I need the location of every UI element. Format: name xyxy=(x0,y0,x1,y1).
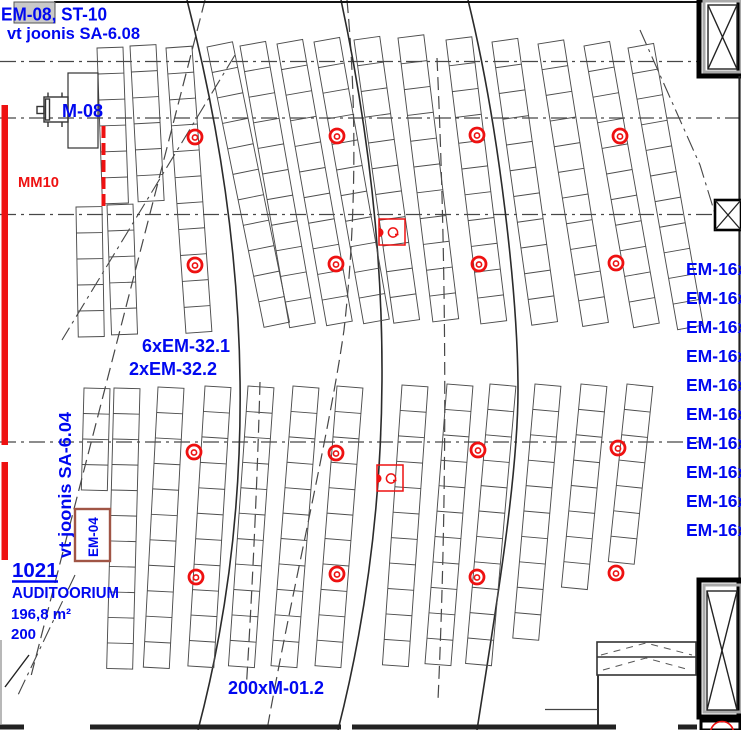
svg-text:196,8 m²: 196,8 m² xyxy=(11,606,71,623)
svg-text:EM-16x: EM-16x xyxy=(686,346,741,366)
svg-text:AUDITOORIUM: AUDITOORIUM xyxy=(12,585,119,602)
svg-text:1021: 1021 xyxy=(12,559,58,582)
svg-text:EM-16x: EM-16x xyxy=(686,404,741,424)
svg-text:EM-16x: EM-16x xyxy=(686,433,741,453)
svg-text:200: 200 xyxy=(11,626,36,643)
svg-text:6xEM-32.1: 6xEM-32.1 xyxy=(142,336,230,356)
svg-text:EM-16x: EM-16x xyxy=(686,288,741,308)
svg-text:vt joonis SA-6.08: vt joonis SA-6.08 xyxy=(7,24,140,43)
svg-text:EM-04: EM-04 xyxy=(86,517,101,557)
svg-text:2xEM-32.2: 2xEM-32.2 xyxy=(129,359,217,379)
svg-text:EM-16x: EM-16x xyxy=(686,462,741,482)
svg-text:200xM-01.2: 200xM-01.2 xyxy=(228,678,324,698)
svg-text:EM-16x: EM-16x xyxy=(686,520,741,540)
svg-text:EM-16x: EM-16x xyxy=(686,491,741,511)
svg-text:EM-16x: EM-16x xyxy=(686,259,741,279)
svg-text:EM-16x: EM-16x xyxy=(686,375,741,395)
svg-text:MM10: MM10 xyxy=(18,174,59,191)
svg-text:EM-16x: EM-16x xyxy=(686,317,741,337)
svg-text:EM-08, ST-10: EM-08, ST-10 xyxy=(1,5,107,25)
svg-text:M-08: M-08 xyxy=(62,101,103,121)
svg-text:vt joonis SA-6.04: vt joonis SA-6.04 xyxy=(55,412,75,558)
